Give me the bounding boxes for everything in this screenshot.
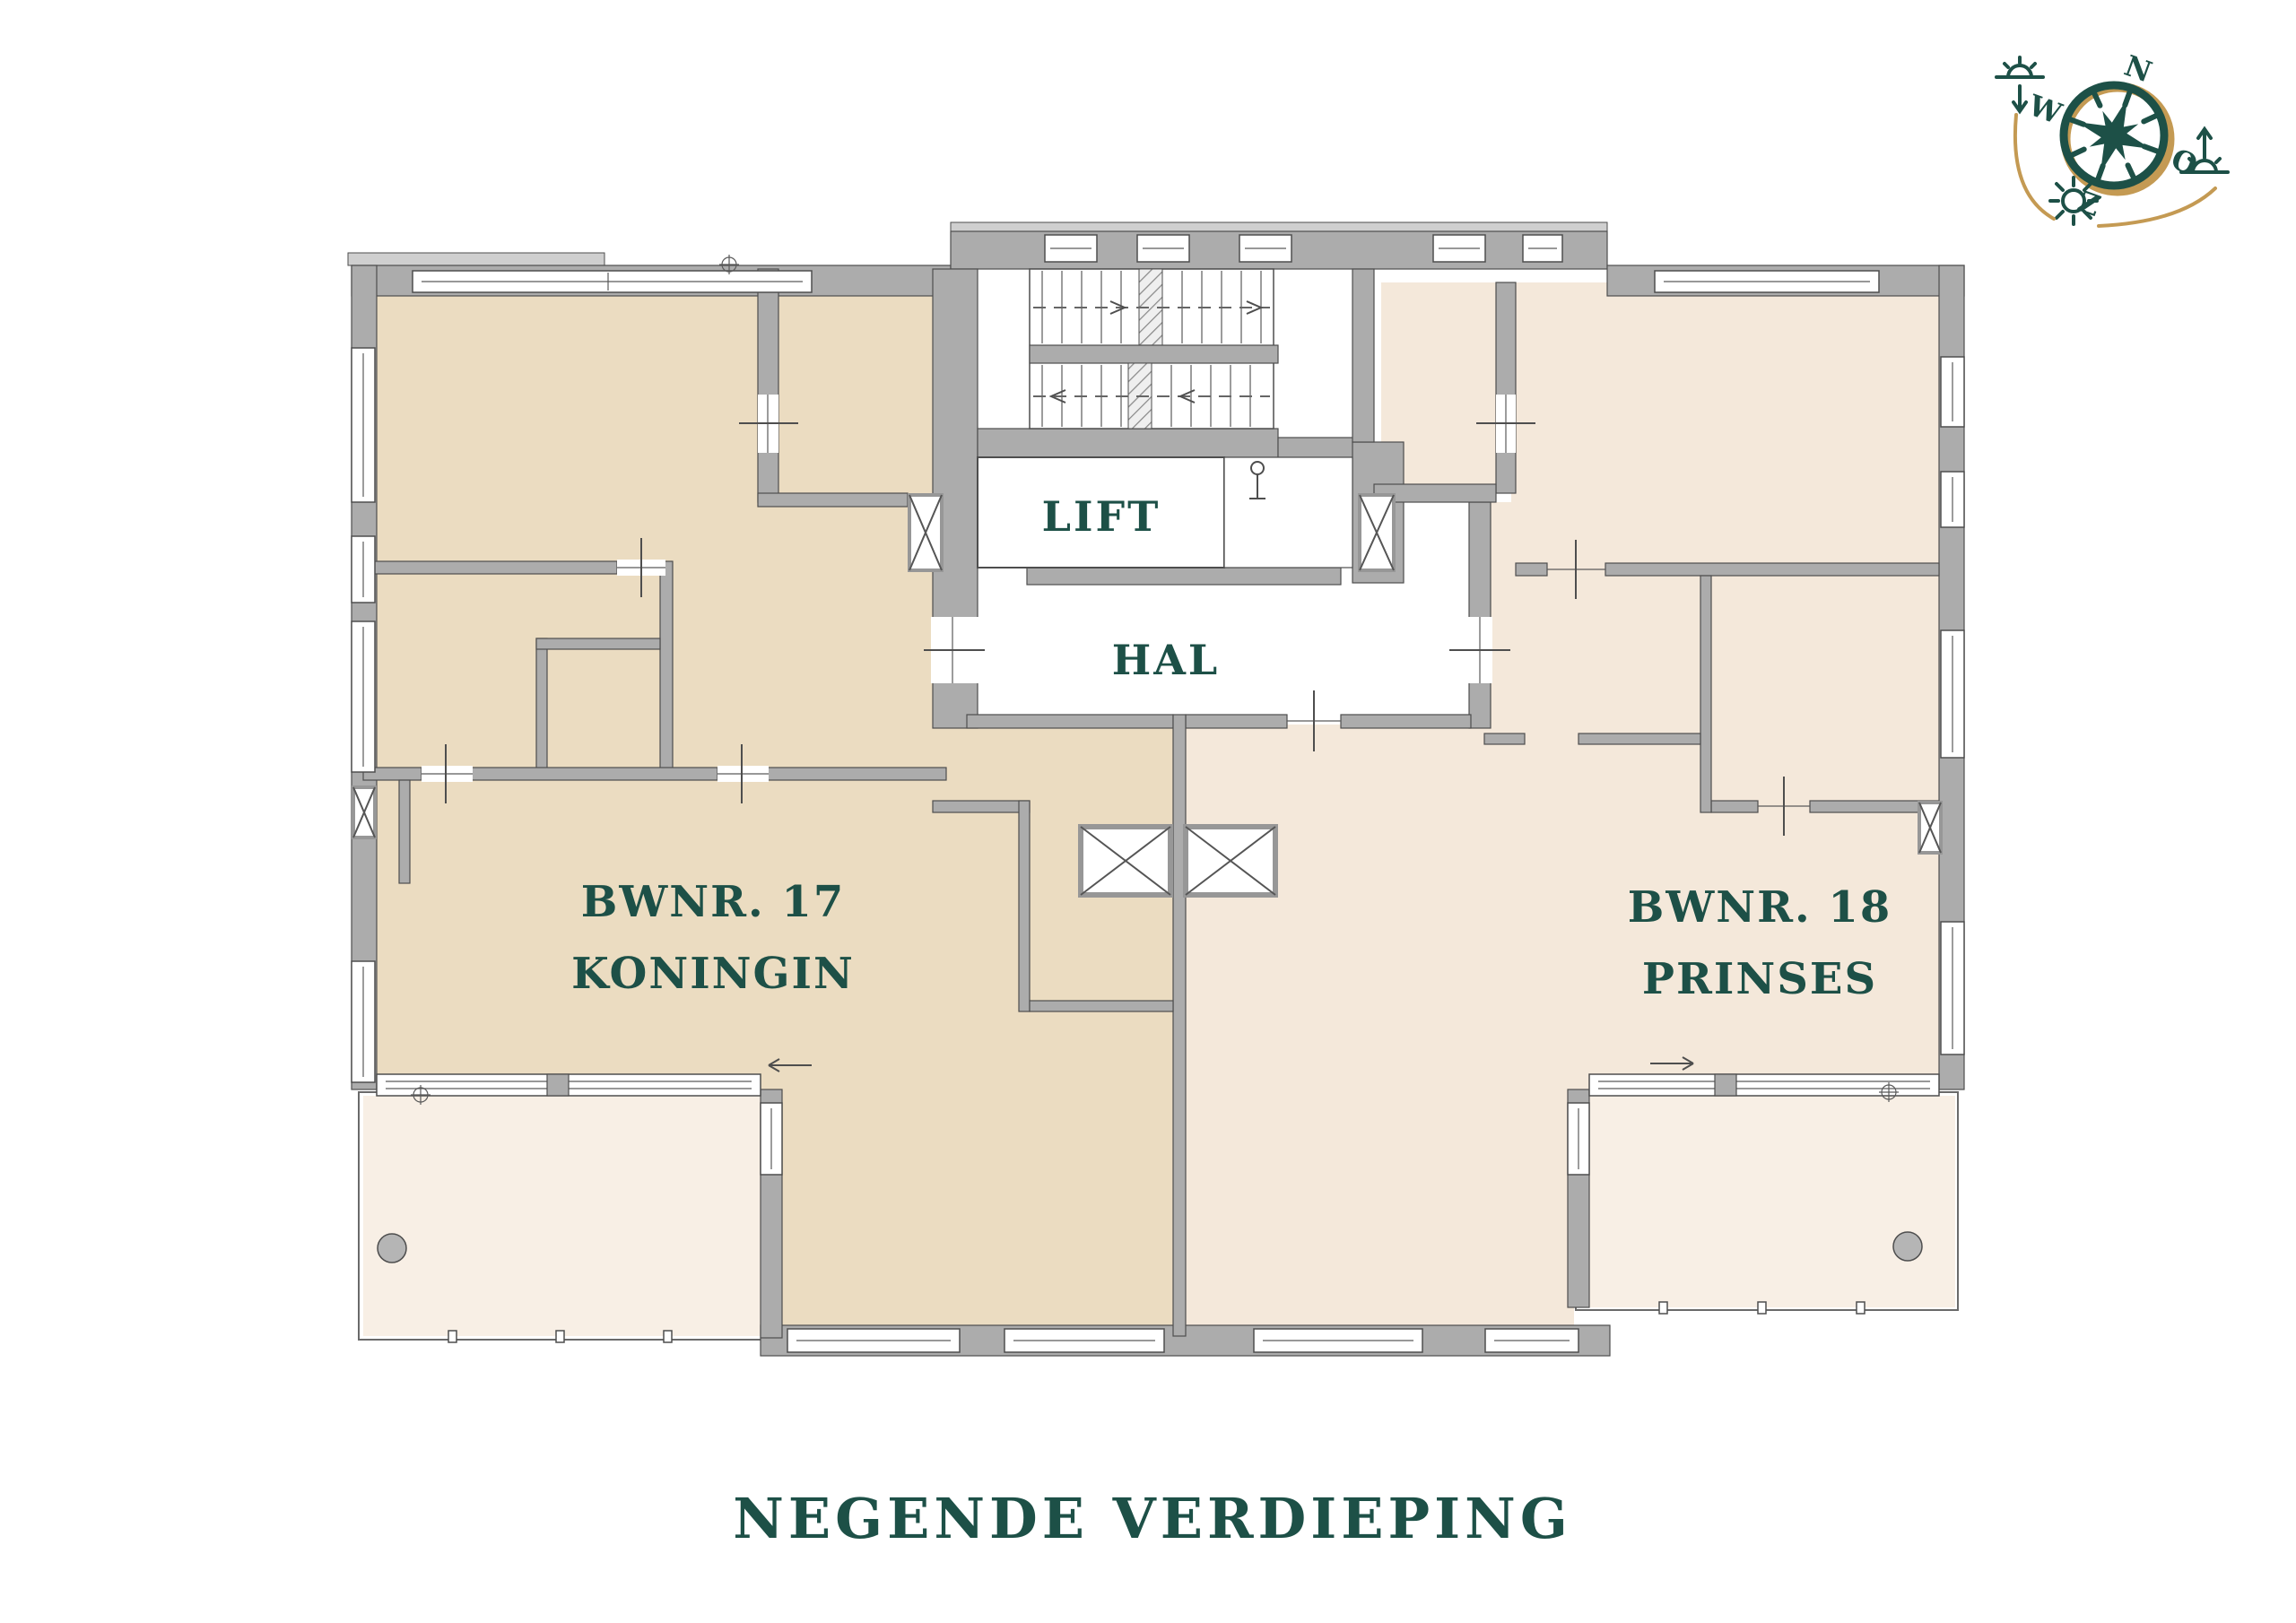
terrace-left xyxy=(363,1096,761,1336)
hal-label: HAL xyxy=(1112,636,1221,684)
apartment-17-name: KONINGIN xyxy=(571,949,855,999)
sun-icon xyxy=(2050,178,2097,224)
lift-label: LIFT xyxy=(1042,492,1161,541)
apartment-dividing-wall xyxy=(1173,715,1186,1336)
terrace-right xyxy=(1578,1096,1955,1307)
terrace-column-left xyxy=(378,1234,406,1263)
staircase xyxy=(1030,269,1278,429)
compass-west-label: W xyxy=(2023,88,2067,132)
compass-arc-left xyxy=(2015,115,2054,219)
apartment-18-name: PRINSES xyxy=(1642,954,1877,1004)
floor-plan-drawing: LIFT HAL BWNR. 17 KONINGIN BWNR. 18 PRIN… xyxy=(0,0,2296,1623)
terrace-column-right xyxy=(1893,1232,1922,1261)
compass-rose: N O Z W xyxy=(1996,22,2228,249)
apartment-18-number: BWNR. 18 xyxy=(1628,882,1892,933)
apartment-17-number: BWNR. 17 xyxy=(581,877,845,927)
page-title: NEGENDE VERDIEPING xyxy=(733,1486,1572,1551)
compass-rose-icon: N O Z W xyxy=(1998,22,2227,249)
core-wall-right xyxy=(1469,502,1491,728)
floor-plan-page: LIFT HAL BWNR. 17 KONINGIN BWNR. 18 PRIN… xyxy=(0,0,2296,1623)
stair-landing xyxy=(1030,345,1278,363)
